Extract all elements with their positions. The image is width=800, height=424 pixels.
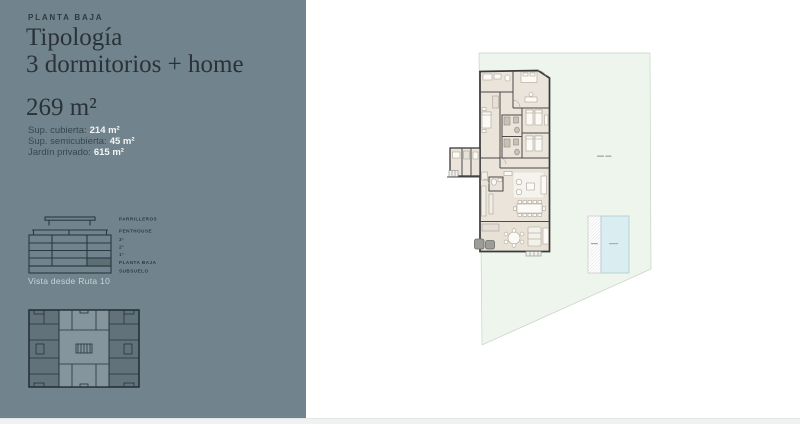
detail-row-covered: Sup. cubierta:214 m²	[28, 125, 135, 136]
swimming-pool	[601, 216, 629, 273]
elevation-caption: Vista desde Ruta 10	[28, 276, 110, 286]
elevation-label-parrilleros: PARRILLEROS	[119, 217, 157, 222]
elevation-label-subsuelo: SUBSUELO	[119, 269, 149, 274]
detail-value: 615 m²	[94, 147, 124, 158]
elevation-label-penthouse: PENTHOUSE	[119, 229, 152, 234]
elevation-roof-bar	[45, 217, 95, 220]
elevation-highlight-cell	[87, 258, 111, 266]
pool-label-mark	[609, 243, 618, 244]
building-elevation-diagram: PARRILLEROS PENTHOUSE 3° 2° 1° PLANTA BA…	[20, 212, 190, 280]
detail-row-garden: Jardín privado:615 m²	[28, 147, 135, 158]
page-footer-strip	[0, 418, 800, 424]
sidebar-panel: PLANTA BAJA Tipología 3 dormitorios + ho…	[0, 0, 306, 424]
elevation-label-planta-baja: PLANTA BAJA	[119, 260, 157, 265]
dining-set	[514, 201, 546, 217]
elevation-label-3: 3°	[119, 237, 124, 242]
deck-label-mark	[591, 243, 598, 244]
detail-label: Sup. cubierta:	[28, 125, 87, 136]
elevation-label-1: 1°	[119, 252, 124, 257]
detail-value: 45 m²	[110, 136, 135, 147]
entry-steps	[449, 171, 458, 177]
typology-title-line2: 3 dormitorios + home	[26, 51, 244, 78]
plan-panel	[306, 0, 800, 424]
key-plan	[28, 308, 140, 390]
detail-label: Sup. semicubierta:	[28, 136, 107, 147]
elevation-label-2: 2°	[119, 245, 124, 250]
typology-title-line1: Tipología	[26, 24, 244, 51]
pool-deck	[588, 216, 601, 273]
detail-label: Jardín privado:	[28, 147, 91, 158]
bed-main	[521, 72, 537, 83]
site-plan	[306, 0, 800, 424]
surface-details: Sup. cubierta:214 m² Sup. semicubierta:4…	[28, 125, 135, 158]
detail-value: 214 m²	[90, 125, 120, 136]
elevation-labels: PARRILLEROS PENTHOUSE 3° 2° 1° PLANTA BA…	[119, 217, 157, 274]
detail-row-semicovered: Sup. semicubierta:45 m²	[28, 136, 135, 147]
total-area-value: 269 m²	[26, 94, 97, 122]
typology-title: Tipología 3 dormitorios + home	[26, 24, 244, 78]
garden-steps	[526, 252, 541, 257]
floor-eyebrow-label: PLANTA BAJA	[28, 13, 103, 22]
